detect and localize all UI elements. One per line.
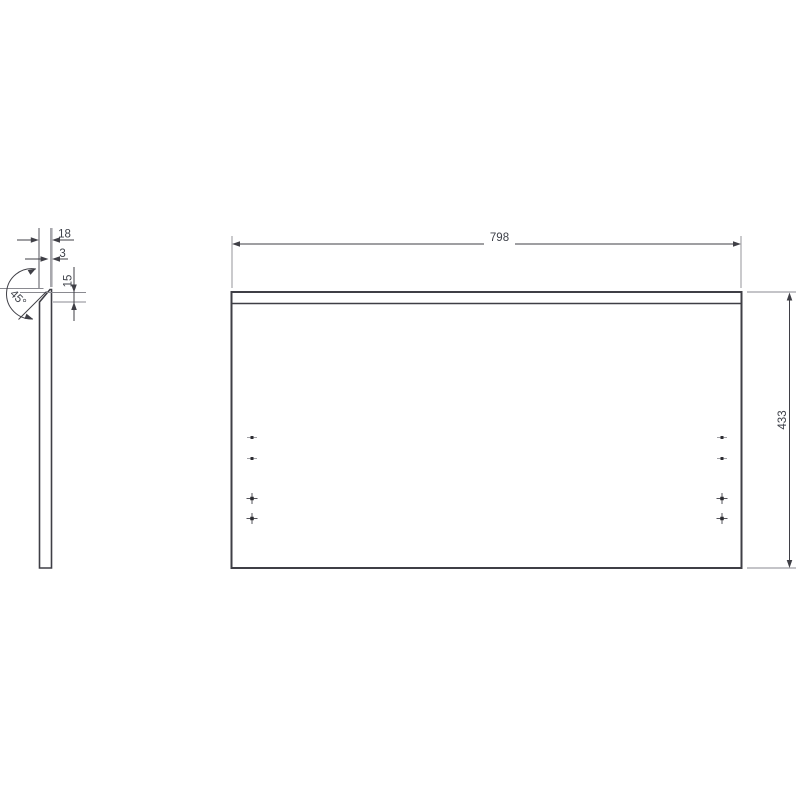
hole-cross-marker [250, 517, 254, 521]
dim-height-433: 433 [747, 292, 796, 568]
arrowhead-right-icon [31, 237, 39, 243]
arrowhead-down-icon [787, 560, 793, 568]
dim-label-edge-flat: 3 [59, 248, 65, 260]
panel-face [232, 292, 742, 568]
dim-chamfer-height-15: 15 [20, 267, 86, 321]
hole-dot-marker [721, 436, 724, 439]
arrowhead-up-icon [71, 302, 77, 310]
hole-dot-marker [251, 457, 254, 460]
side-view: 18 3 15 [0, 228, 86, 568]
arrowhead-up-icon [787, 293, 793, 301]
technical-drawing-page: 18 3 15 [0, 0, 800, 800]
hole-cross-marker [720, 497, 724, 501]
arrowhead-arc-top-icon [28, 266, 38, 275]
dim-label-height: 433 [777, 410, 789, 429]
dim-thickness-18: 18 [17, 229, 74, 243]
dim-label-chamfer-angle: 45° [7, 288, 28, 309]
front-view: 798 433 [232, 232, 797, 568]
hole-dot-marker [721, 457, 724, 460]
arrowhead-arc-bottom-icon [25, 314, 34, 322]
dim-edge-flat-3: 3 [25, 248, 68, 262]
hole-cross-marker [720, 517, 724, 521]
hole-cross-marker [250, 497, 254, 501]
dim-label-chamfer-height: 15 [63, 275, 75, 288]
arrowhead-right-icon [41, 256, 49, 262]
dim-width-798: 798 [232, 232, 741, 288]
panel-profile [40, 290, 52, 569]
dim-label-width: 798 [490, 232, 509, 244]
dim-label-thickness: 18 [58, 229, 71, 241]
hole-dot-marker [251, 436, 254, 439]
panel-drawing-svg: 18 3 15 [0, 0, 800, 800]
